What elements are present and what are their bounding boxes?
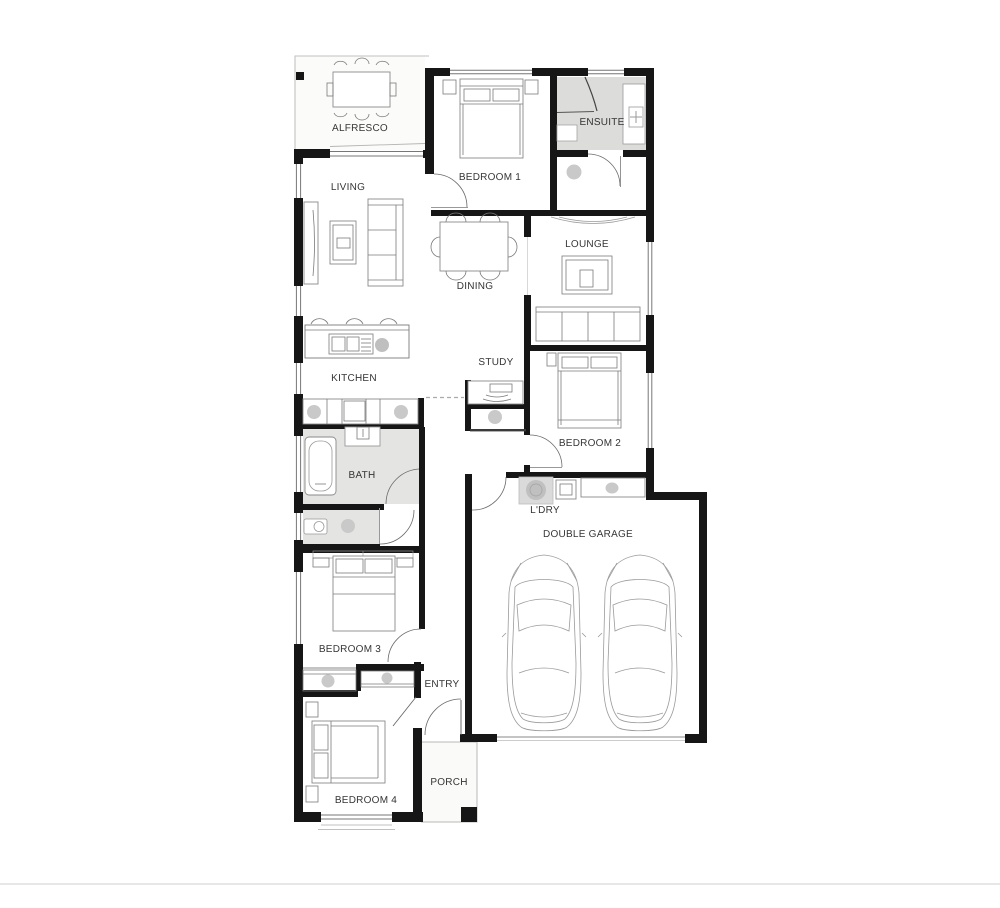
- svg-text:ENSUITE: ENSUITE: [579, 117, 624, 128]
- svg-text:PORCH: PORCH: [430, 777, 467, 788]
- svg-text:BEDROOM 1: BEDROOM 1: [459, 172, 521, 183]
- svg-text:L'DRY: L'DRY: [530, 505, 560, 516]
- svg-text:BEDROOM 2: BEDROOM 2: [559, 438, 621, 449]
- svg-text:BATH: BATH: [349, 470, 376, 481]
- svg-text:LOUNGE: LOUNGE: [565, 239, 609, 250]
- svg-text:ALFRESCO: ALFRESCO: [332, 123, 388, 134]
- svg-text:DOUBLE GARAGE: DOUBLE GARAGE: [543, 529, 633, 540]
- svg-text:DINING: DINING: [457, 281, 494, 292]
- svg-text:ENTRY: ENTRY: [425, 679, 460, 690]
- svg-text:KITCHEN: KITCHEN: [331, 373, 377, 384]
- svg-text:LIVING: LIVING: [331, 182, 365, 193]
- svg-text:BEDROOM 4: BEDROOM 4: [335, 795, 397, 806]
- svg-text:STUDY: STUDY: [478, 357, 513, 368]
- svg-text:BEDROOM 3: BEDROOM 3: [319, 644, 381, 655]
